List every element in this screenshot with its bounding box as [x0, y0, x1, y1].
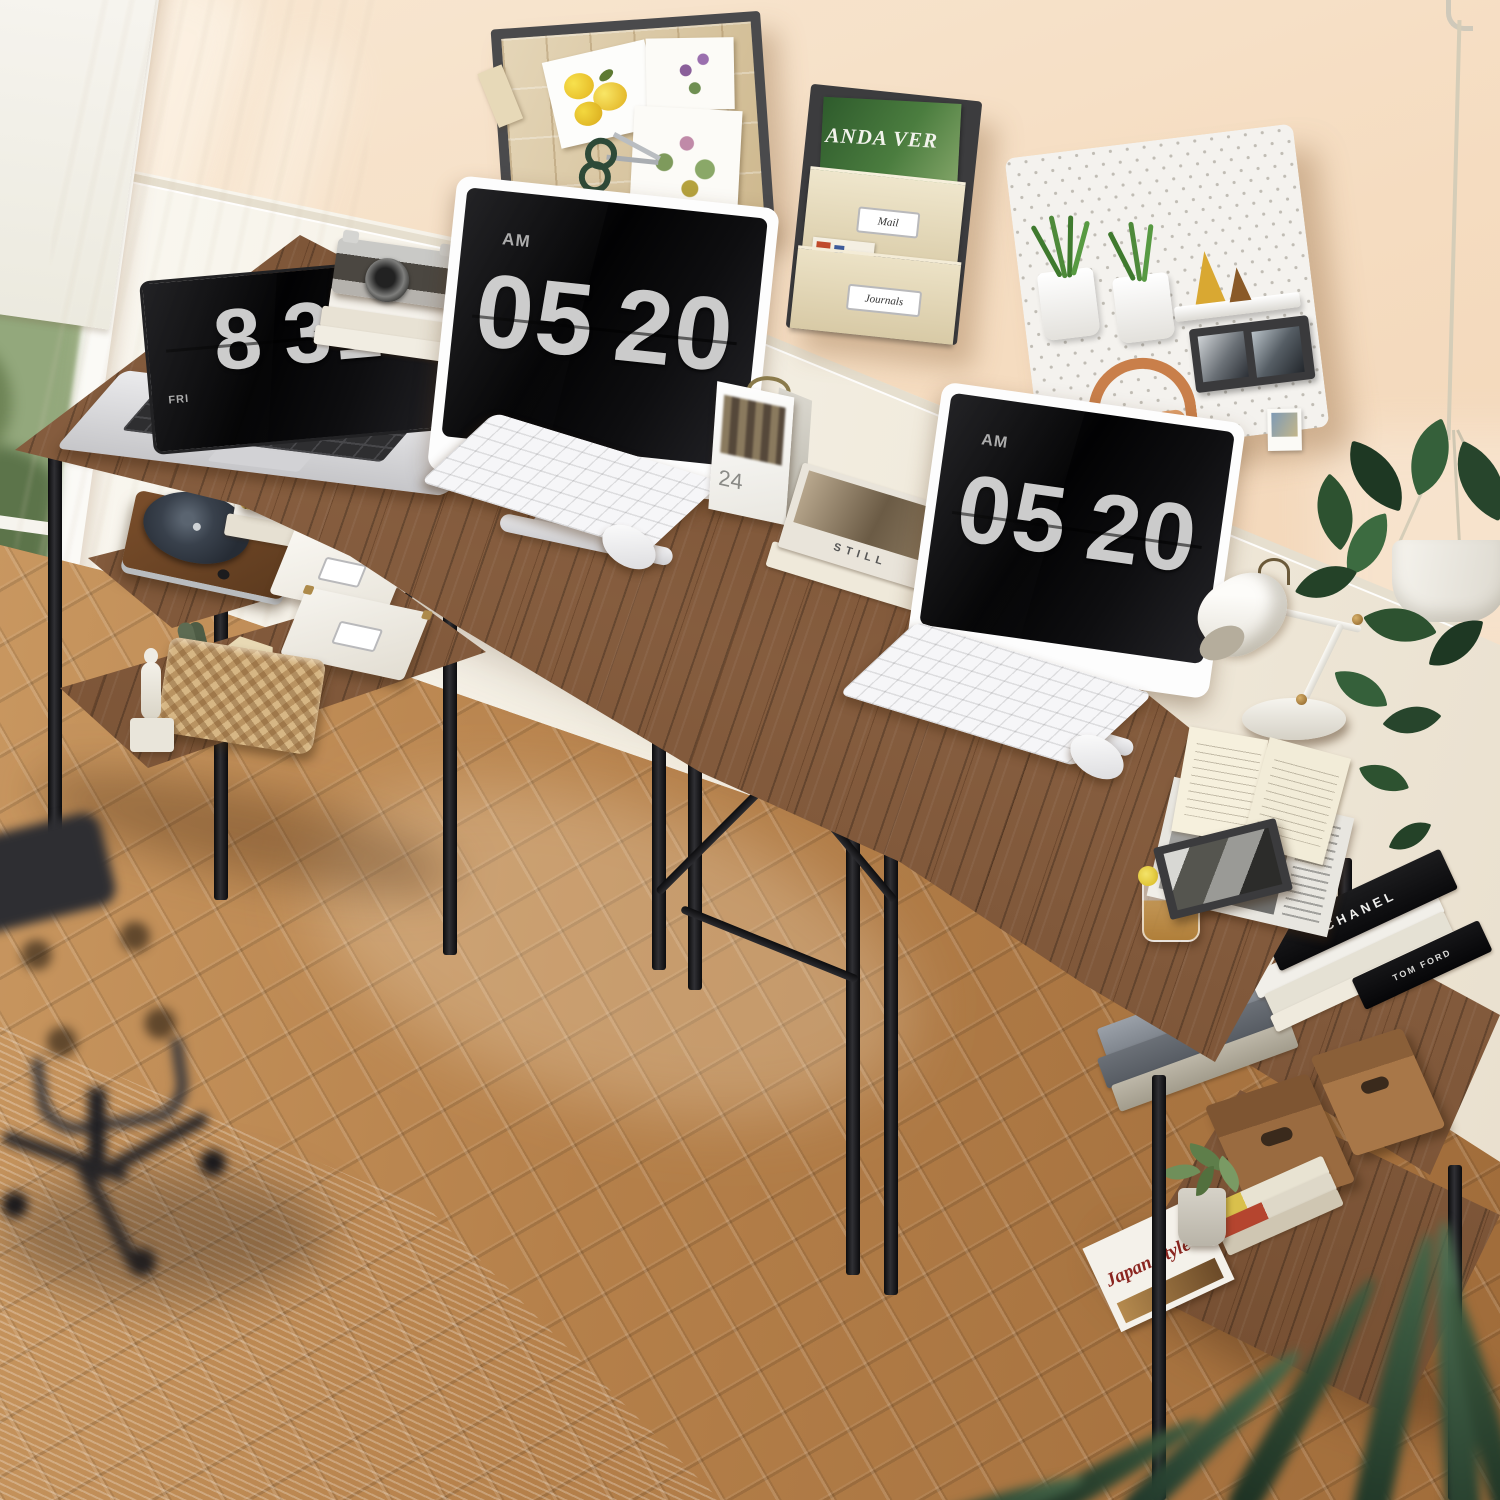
- lemon: [561, 70, 596, 102]
- figurine-base: [130, 718, 174, 752]
- organizer-pocket-journals: Journals: [790, 245, 962, 345]
- laptop-clock-label: FRI: [168, 393, 190, 407]
- monitor-clock-meridiem: AM: [980, 431, 1009, 453]
- pocket-label-plate: Mail: [856, 206, 920, 238]
- shelf-leg: [48, 455, 62, 845]
- monitor-clock-meridiem: AM: [501, 229, 531, 252]
- desk-leg: [688, 755, 702, 990]
- figurine: [136, 648, 166, 750]
- calendar-photo: [720, 395, 785, 466]
- succulent-leaf: [1161, 1155, 1200, 1189]
- calendar-front: 24: [708, 381, 794, 525]
- grass-plant: [1032, 209, 1096, 285]
- cube-handle: [1259, 1125, 1295, 1148]
- chair-column: [88, 1088, 106, 1163]
- lamp-joint: [1352, 614, 1363, 625]
- pothos-leaf: [1383, 690, 1442, 749]
- grass-plant: [1107, 216, 1171, 290]
- pocket-label-plate: Journals: [846, 284, 922, 318]
- chair-shadow: [0, 1170, 330, 1300]
- monitor-flip-clock: 05 20: [449, 249, 762, 399]
- plant-rope: [1447, 20, 1462, 440]
- lemon-garnish: [1138, 866, 1158, 886]
- pocket-label: Mail: [877, 215, 899, 229]
- grass-blade: [1142, 224, 1154, 282]
- photo: [1198, 331, 1249, 382]
- grass-blade: [1071, 221, 1090, 276]
- organizer-magazine-title: ANDA VER: [825, 123, 939, 154]
- laptop-clock-hour: 8: [209, 288, 267, 391]
- lamp-base: [1242, 698, 1346, 740]
- pocket-label: Journals: [864, 292, 904, 308]
- wall-file-organizer: ANDA VER Mail Journals: [786, 84, 983, 346]
- brass-corner: [302, 585, 314, 595]
- lamp-joint: [1296, 694, 1307, 705]
- monitor-clock-hour: 05: [950, 453, 1075, 577]
- cone-tree-brown: [1226, 266, 1252, 302]
- foreground-plant: [820, 1220, 1500, 1500]
- monitor-clock-minute: 20: [609, 266, 740, 397]
- cone-tree-yellow: [1189, 249, 1225, 304]
- scene: ANDA VER Mail Journals: [0, 0, 1500, 1500]
- monitor-clock-hour: 05: [470, 251, 601, 382]
- pothos-leaf: [1389, 814, 1431, 859]
- desk-leg: [846, 835, 860, 1275]
- succulent-plant: [1160, 1140, 1250, 1200]
- figurine-body: [141, 662, 161, 720]
- palm-frond: [1349, 1230, 1447, 1500]
- cube-handle: [1359, 1075, 1391, 1096]
- botanical-card: [646, 37, 735, 111]
- box-label: [331, 621, 383, 653]
- pothos-leaf: [1429, 613, 1483, 672]
- calendar-day: 24: [718, 465, 744, 496]
- camera-dial: [342, 230, 360, 244]
- desk-leg: [652, 740, 666, 970]
